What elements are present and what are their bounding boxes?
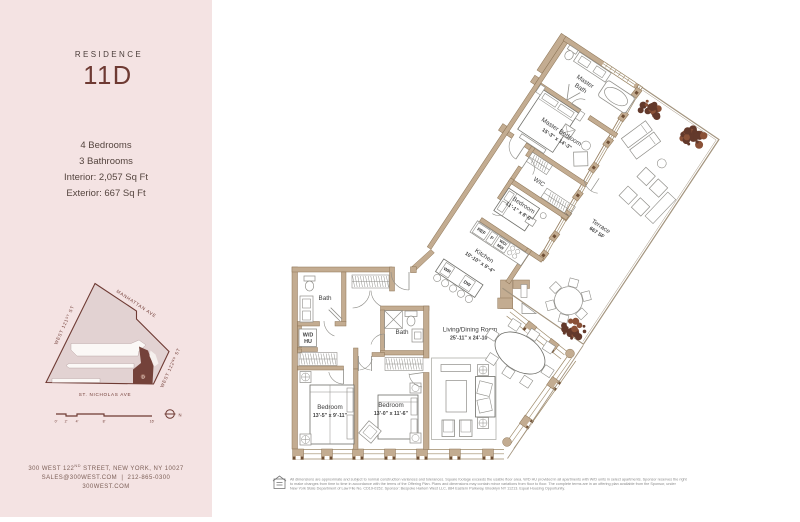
svg-text:Bedroom: Bedroom [378, 402, 404, 409]
svg-text:New York State Department of L: New York State Department of Law File No… [290, 487, 565, 491]
svg-text:25’-11” x 24’-10”: 25’-11” x 24’-10” [450, 336, 490, 342]
svg-text:13’-0” x 11’-6”: 13’-0” x 11’-6” [374, 411, 409, 417]
svg-text:All dimensions are approximate: All dimensions are approximate and subje… [290, 478, 688, 482]
svg-text:WIC: WIC [532, 176, 546, 189]
svg-text:Bath: Bath [319, 295, 332, 302]
svg-text:HU: HU [304, 339, 312, 345]
svg-text:W/D: W/D [303, 333, 314, 339]
svg-text:13’-5” x 9’-11”: 13’-5” x 9’-11” [313, 413, 348, 419]
svg-text:to make changes from time to t: to make changes from time to time in acc… [290, 482, 677, 486]
svg-text:Bath: Bath [396, 329, 409, 336]
svg-text:Bedroom: Bedroom [317, 404, 343, 411]
